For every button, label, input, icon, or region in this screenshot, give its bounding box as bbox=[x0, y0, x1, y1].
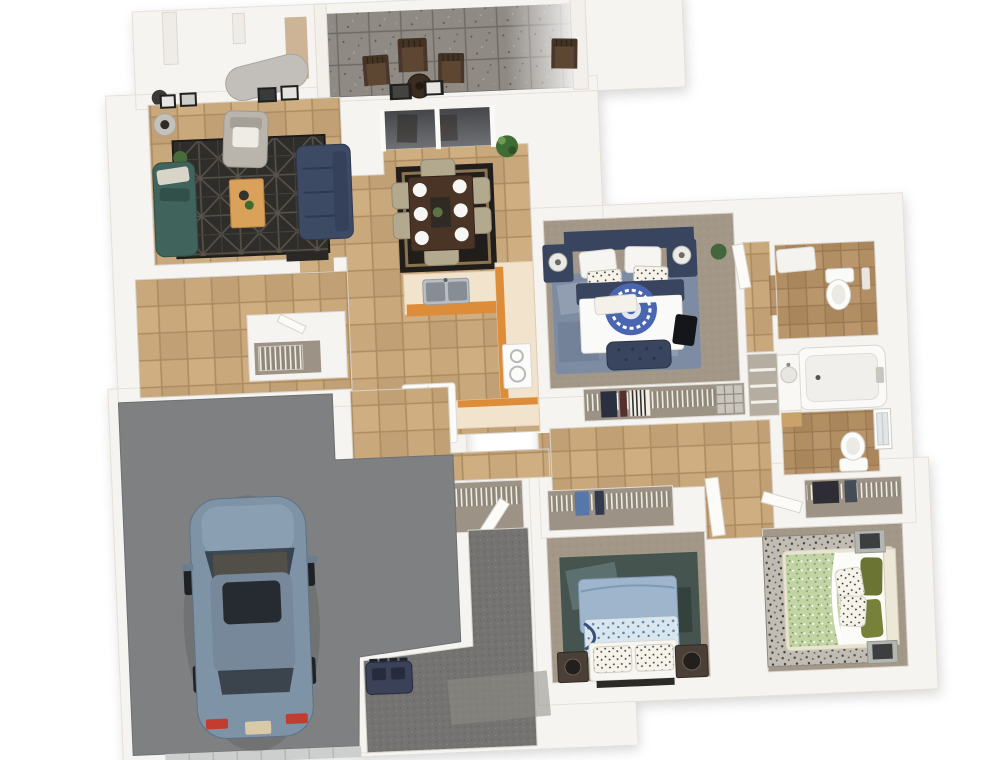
floor-plan bbox=[92, 0, 940, 760]
patio-chair bbox=[438, 53, 464, 83]
bedroom2-closet bbox=[548, 486, 675, 531]
throw bbox=[672, 314, 698, 347]
room-dining bbox=[391, 157, 498, 273]
wire-basket-unit bbox=[716, 385, 743, 414]
sofa bbox=[296, 144, 354, 240]
vanity-sink bbox=[777, 354, 801, 411]
linen-closet bbox=[747, 353, 780, 416]
floor-patch bbox=[447, 671, 551, 725]
wire-basket bbox=[258, 345, 303, 371]
coat-closet bbox=[247, 311, 348, 381]
bed-bench bbox=[606, 340, 671, 371]
wall-stub bbox=[232, 13, 245, 43]
wood-mat bbox=[781, 412, 802, 427]
floor-plan-stage bbox=[0, 0, 1000, 760]
bath-hall-floor bbox=[742, 241, 774, 352]
room-foyer bbox=[135, 271, 352, 398]
floor-plan-render bbox=[0, 0, 1000, 760]
sunroof bbox=[222, 580, 282, 624]
hanging-clothes bbox=[600, 391, 617, 418]
dining-table bbox=[408, 175, 475, 252]
mirror-right bbox=[306, 556, 317, 563]
room-bedroom-3 bbox=[760, 476, 909, 672]
taillight-left bbox=[206, 719, 228, 730]
master-closet bbox=[583, 383, 745, 422]
bedroom3-bed bbox=[782, 546, 899, 651]
bedroom2-bed bbox=[578, 576, 680, 682]
room-patio bbox=[314, 0, 589, 102]
bathtub bbox=[797, 345, 888, 411]
armchair bbox=[223, 111, 269, 168]
towel-bar bbox=[861, 267, 870, 289]
car-hood bbox=[201, 504, 295, 556]
license-plate bbox=[245, 721, 272, 735]
window bbox=[873, 409, 892, 450]
taillight-right bbox=[286, 713, 308, 724]
bedroom3-closet bbox=[804, 476, 903, 518]
car bbox=[178, 493, 325, 754]
kitchen-island bbox=[403, 271, 505, 317]
kitchen-counter-bottom bbox=[456, 397, 540, 428]
patio-chair bbox=[551, 38, 577, 68]
mirror-left bbox=[182, 564, 193, 571]
striped-shirt bbox=[629, 390, 650, 417]
storage-chest bbox=[365, 659, 412, 695]
patio-chair bbox=[362, 54, 390, 86]
bath-rug bbox=[776, 247, 816, 273]
patio-chair bbox=[397, 38, 428, 73]
media-console bbox=[286, 251, 328, 262]
room-master-bath bbox=[774, 241, 878, 339]
sliding-glass-door bbox=[379, 105, 496, 152]
wall-stub bbox=[162, 12, 178, 65]
chaise bbox=[152, 161, 198, 257]
coffee-table bbox=[229, 179, 265, 228]
room-master-bedroom bbox=[541, 212, 755, 389]
